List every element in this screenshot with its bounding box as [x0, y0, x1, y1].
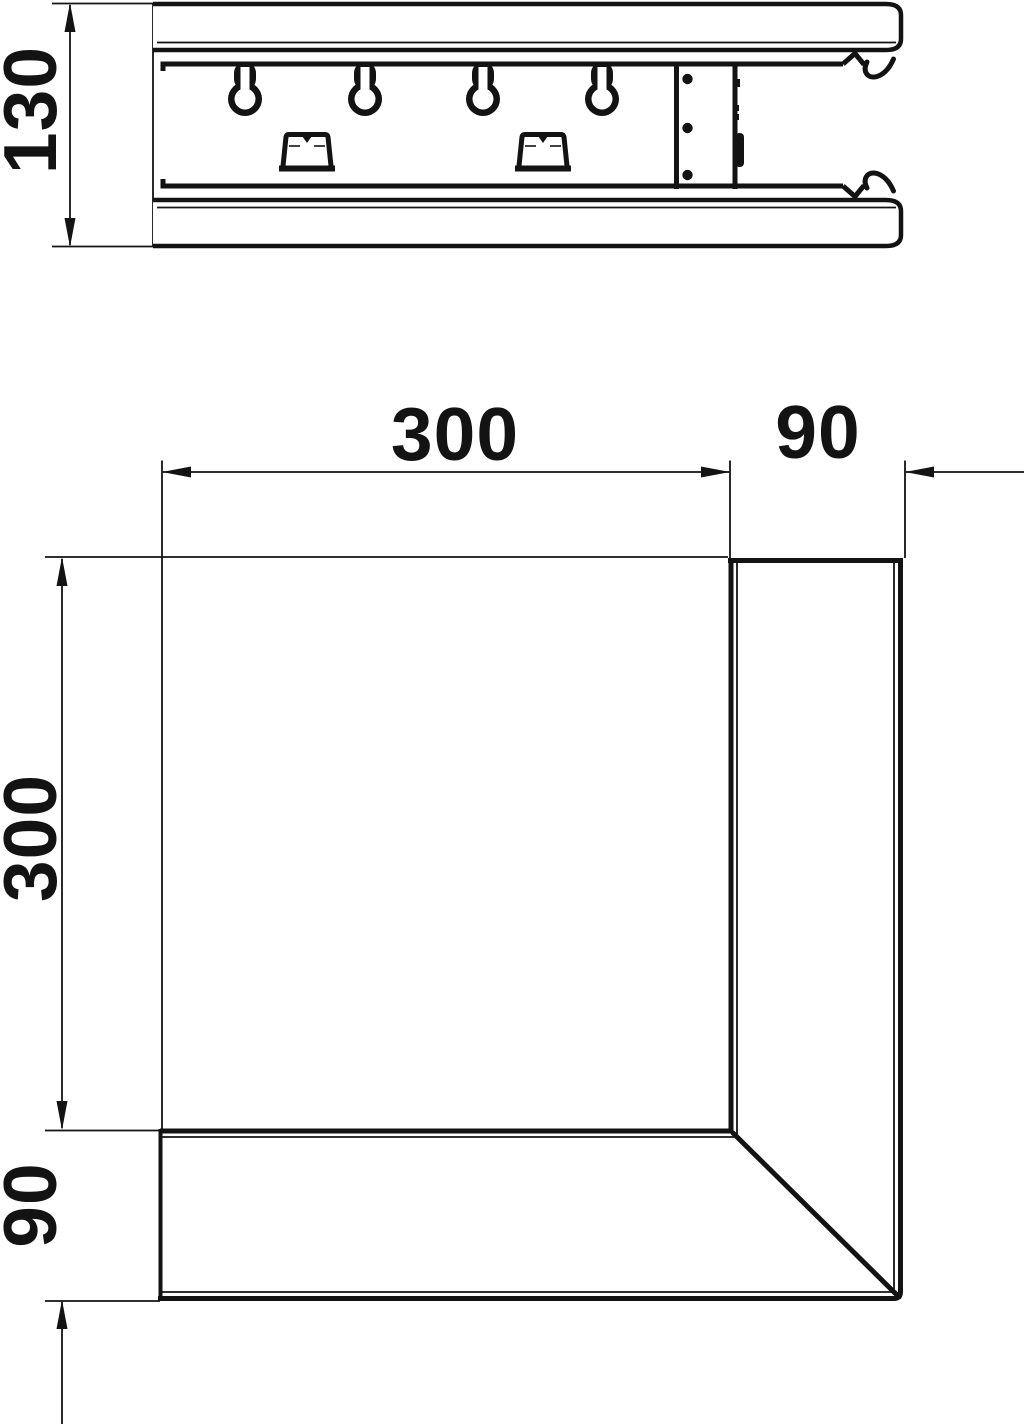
- dimension-height-300-left: 300: [0, 557, 728, 1131]
- arrowhead-down: [57, 1101, 68, 1130]
- coupler-latch: [736, 133, 745, 167]
- arrowhead-left: [905, 467, 934, 478]
- keyhole-slot-1: [228, 62, 262, 116]
- cover-snap-hook-bottom: [865, 173, 893, 191]
- dimension-duct-90-left: 90: [0, 1162, 160, 1424]
- technical-drawing-page: 130 300 90 300: [0, 0, 1024, 1424]
- dimension-label-90-left: 90: [0, 1162, 72, 1247]
- arrowhead-up: [57, 557, 68, 586]
- dimension-label-90-top: 90: [775, 390, 860, 474]
- flat-angle-technical-drawing: 130 300 90 300: [0, 0, 1024, 1424]
- rivet-dot-2: [682, 123, 692, 133]
- mounting-clip-2: [515, 135, 571, 169]
- keyhole-slot-3: [466, 62, 500, 116]
- arrowhead-up: [57, 1300, 68, 1329]
- coupler-joint: [677, 64, 745, 189]
- keyhole-slot-2: [348, 62, 382, 116]
- rivet-dot-3: [682, 170, 692, 180]
- dimension-label-130: 130: [0, 46, 72, 174]
- arrowhead-down: [65, 218, 76, 247]
- arrowhead-up: [65, 3, 76, 32]
- side-view: 130: [0, 3, 901, 247]
- mounting-clip-1: [279, 135, 335, 169]
- dimension-label-300-left: 300: [0, 774, 72, 902]
- dimension-height-130: 130: [0, 3, 158, 247]
- flat-angle-body: [158, 558, 903, 1301]
- plan-view: 300 90 300 90: [0, 390, 1024, 1424]
- miter-seam-diagonal: [733, 1133, 899, 1297]
- cover-snap-hook-top: [865, 59, 893, 77]
- arrowhead-left: [162, 467, 191, 478]
- rivet-dot-1: [682, 74, 692, 84]
- dimension-label-300-top: 300: [391, 392, 519, 476]
- arrowhead-right: [701, 467, 730, 478]
- dimension-width-300-top: 300: [162, 392, 730, 1131]
- dimension-duct-90-top: 90: [775, 390, 1024, 558]
- top-rail-edge: [163, 54, 894, 78]
- keyhole-slot-4: [585, 62, 619, 116]
- bottom-rail-edge: [163, 173, 894, 197]
